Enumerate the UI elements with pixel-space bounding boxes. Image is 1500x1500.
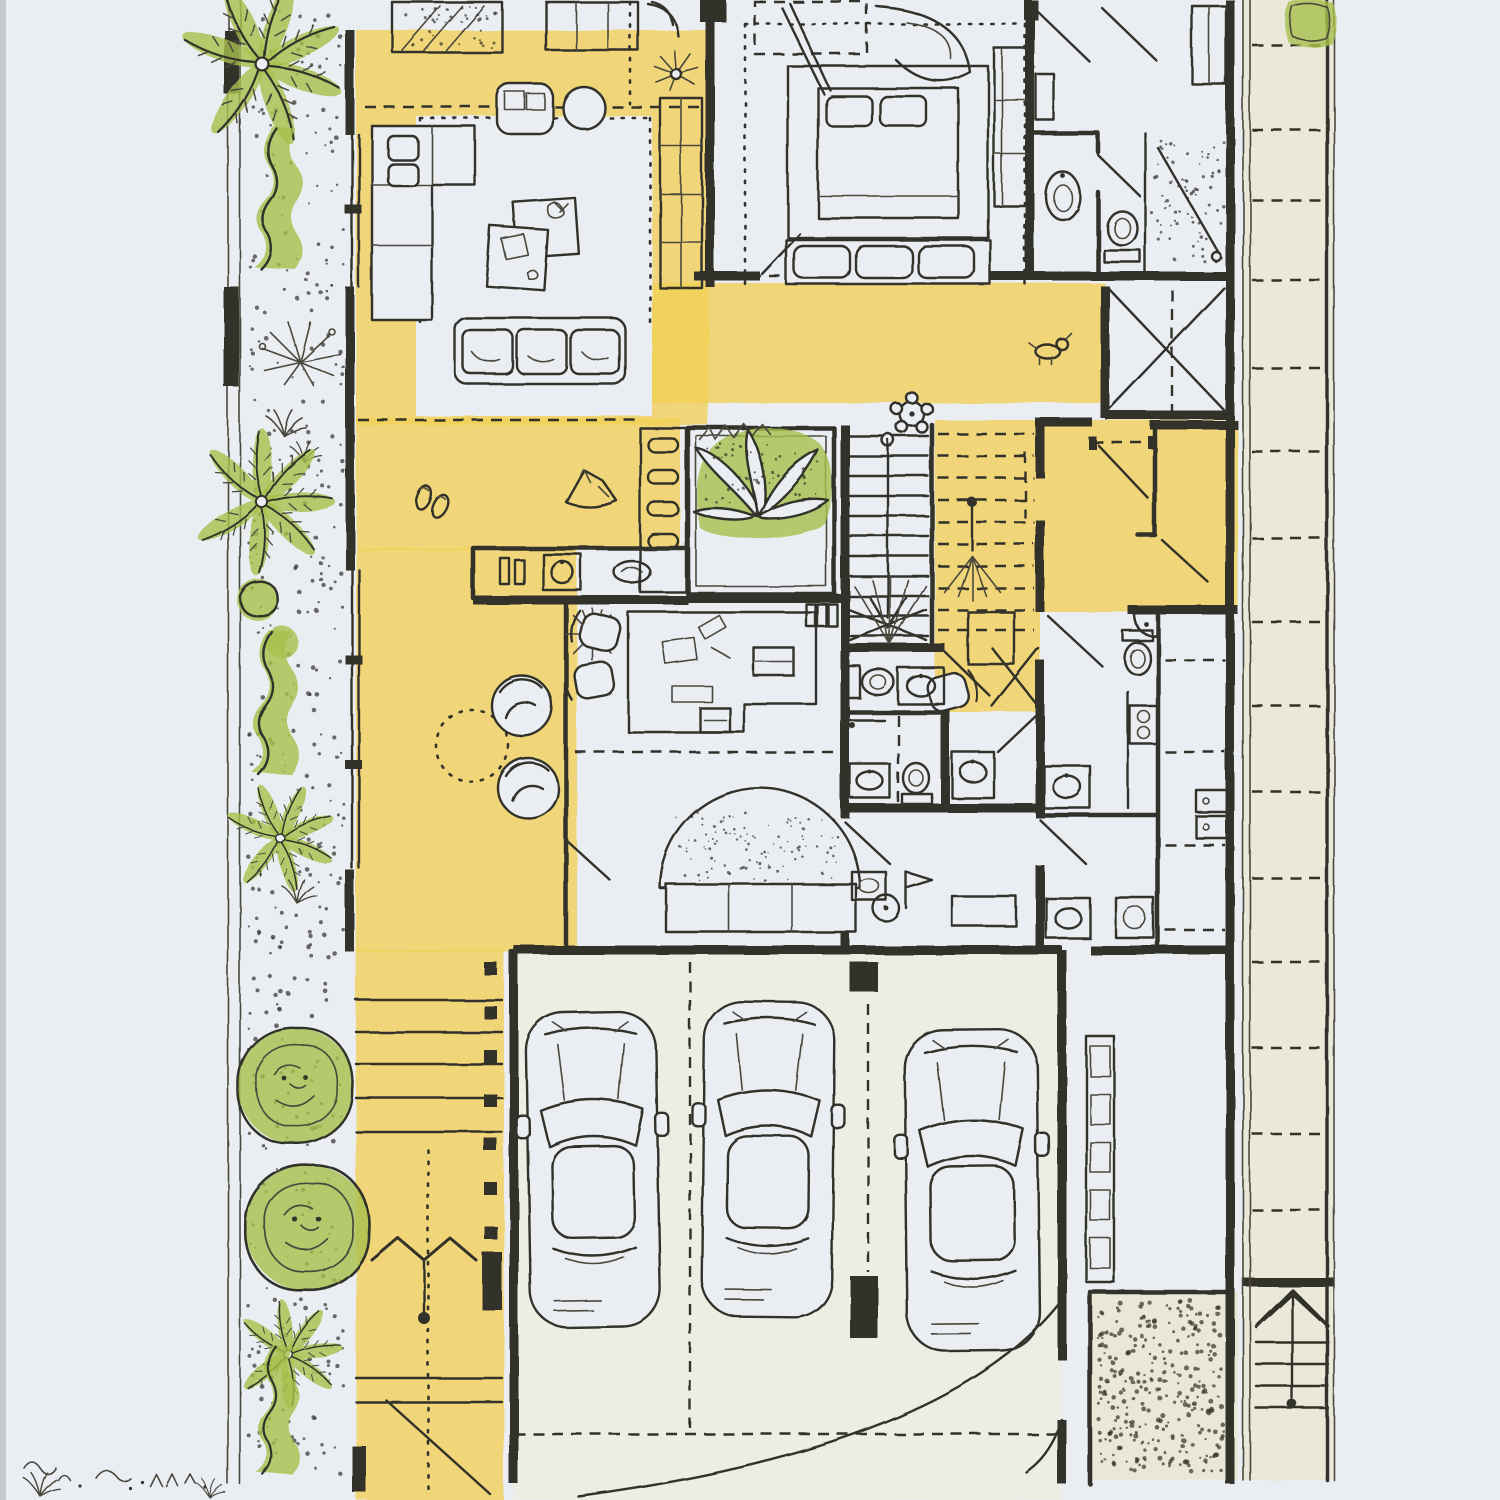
round-tree (245, 1165, 370, 1291)
toilet (903, 763, 929, 793)
gate-post (352, 1446, 366, 1492)
scanned-sketch-page: Hand-drawn architectural floor plan, ink… (0, 0, 1500, 1500)
garage-pier (850, 962, 878, 992)
bed-bench (666, 884, 856, 932)
door-swing (1048, 616, 1102, 666)
washing-machine (1116, 898, 1154, 938)
door-jamb (700, 0, 726, 22)
door-swing (998, 714, 1038, 752)
round-tree (238, 1028, 354, 1144)
toilet-tank (1104, 250, 1140, 262)
flag-marker (906, 872, 932, 908)
equipment-box (1196, 816, 1230, 838)
gate-post (482, 1252, 502, 1310)
car-3 (893, 1029, 1051, 1352)
front-garden-strip (167, 0, 370, 1484)
service-bathroom (1044, 612, 1230, 838)
door-swing (1034, 8, 1090, 62)
toilet (1124, 642, 1150, 674)
dome-bed (660, 788, 860, 888)
bathroom-c (952, 714, 1038, 798)
vanity (952, 752, 994, 798)
floor-plan-sketch: Hand-drawn architectural floor plan, ink… (0, 0, 1500, 1500)
dish (614, 561, 650, 583)
laundry-room (1040, 820, 1154, 938)
mudroom (845, 822, 1016, 926)
round-lounge-chair (492, 676, 552, 736)
garage-pier (850, 1276, 878, 1338)
main-staircase (848, 434, 928, 644)
master-bedroom (755, 2, 1028, 284)
door-swing (1102, 8, 1156, 60)
bathroom-b (848, 720, 932, 804)
scan-edge-shadow (0, 0, 6, 1500)
margin-scribbles (24, 1462, 226, 1498)
vanity (1046, 898, 1090, 938)
shower-head (849, 722, 855, 728)
round-lounge-chair (498, 758, 558, 818)
toilet (1107, 211, 1137, 245)
toilet (862, 669, 894, 695)
fence-wall-segment (224, 287, 239, 387)
equipment-box (1196, 790, 1230, 812)
hedge (255, 126, 303, 270)
grass-tuft (266, 410, 306, 436)
car-1 (514, 1011, 671, 1329)
bathroom-sink (1046, 172, 1080, 220)
mattress (818, 88, 958, 218)
bench (952, 896, 1016, 926)
fan-palm-sketch (259, 322, 340, 386)
palm-tree (220, 775, 343, 901)
palm-tree (167, 0, 360, 162)
door-swing (1098, 155, 1140, 196)
side-setback-strip (1243, 0, 1333, 1480)
palm-tree (175, 413, 352, 593)
sidewalk-edge-lines (228, 0, 240, 1484)
toilet-tank (848, 666, 860, 698)
car-2 (690, 1001, 845, 1318)
shelf (1036, 74, 1054, 120)
toilet-tank (902, 794, 932, 804)
skylight-void (1108, 288, 1224, 410)
wardrobe (994, 48, 1028, 206)
door-swing (1040, 820, 1086, 864)
gravel-patio-wash (1092, 1292, 1238, 1480)
round-side-table (563, 87, 605, 129)
vanity (1044, 766, 1090, 808)
